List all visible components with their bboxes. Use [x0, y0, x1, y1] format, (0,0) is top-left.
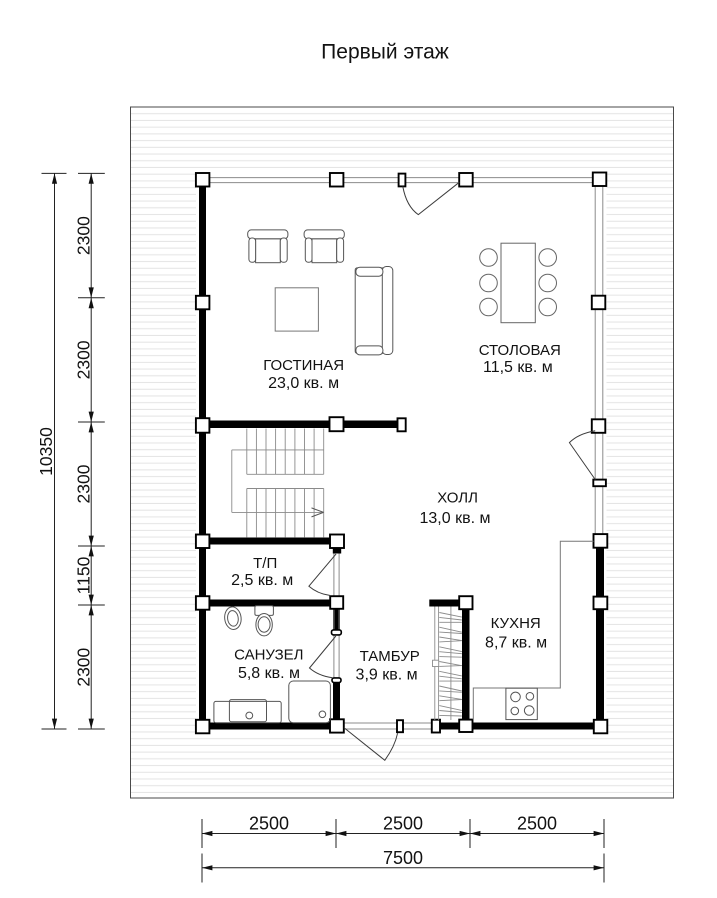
svg-text:2300: 2300: [74, 216, 94, 255]
svg-text:11,5 кв. м: 11,5 кв. м: [483, 359, 553, 376]
svg-text:8,7 кв. м: 8,7 кв. м: [485, 635, 547, 652]
svg-text:10350: 10350: [36, 427, 56, 476]
svg-text:3,9 кв. м: 3,9 кв. м: [356, 667, 418, 684]
svg-text:ХОЛЛ: ХОЛЛ: [437, 490, 478, 507]
svg-text:Первый этаж: Первый этаж: [321, 41, 449, 64]
svg-text:2300: 2300: [74, 340, 94, 379]
svg-text:7500: 7500: [383, 848, 423, 868]
svg-text:ТАМБУР: ТАМБУР: [360, 648, 420, 665]
svg-text:5,8 кв. м: 5,8 кв. м: [238, 665, 300, 682]
svg-text:КУХНЯ: КУХНЯ: [491, 615, 541, 632]
svg-text:СТОЛОВАЯ: СТОЛОВАЯ: [479, 342, 561, 359]
svg-text:САНУЗЕЛ: САНУЗЕЛ: [234, 647, 303, 664]
svg-text:2500: 2500: [517, 814, 557, 834]
svg-text:2300: 2300: [74, 464, 94, 503]
svg-text:1150: 1150: [74, 556, 94, 594]
svg-text:ГОСТИНАЯ: ГОСТИНАЯ: [263, 357, 344, 374]
svg-text:Т/П: Т/П: [253, 555, 277, 572]
svg-text:2300: 2300: [74, 647, 94, 686]
svg-text:13,0 кв. м: 13,0 кв. м: [420, 510, 491, 527]
svg-text:2500: 2500: [383, 814, 423, 834]
svg-text:2,5 кв. м: 2,5 кв. м: [231, 572, 293, 589]
svg-text:2500: 2500: [249, 814, 289, 834]
svg-text:23,0 кв. м: 23,0 кв. м: [268, 375, 339, 392]
